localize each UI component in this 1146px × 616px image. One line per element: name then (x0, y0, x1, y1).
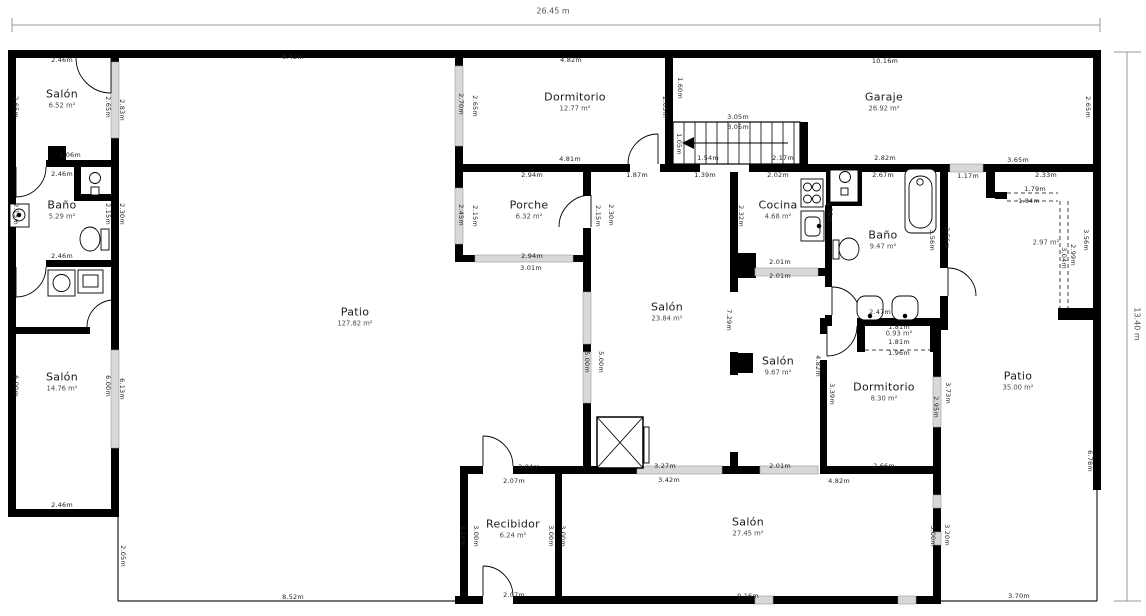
stairs (673, 122, 800, 164)
stove-icon (801, 179, 823, 207)
water-heater-icon (830, 170, 858, 202)
floor-plan: 26.45 m 13.40 m Salón6.52 m²Baño5.29 m²S… (0, 0, 1146, 616)
fixtures (10, 169, 936, 320)
door-utility (16, 267, 46, 297)
door-bano-patio (948, 268, 976, 296)
utility-sink-icon (78, 270, 103, 293)
walls (8, 50, 1101, 604)
elevator-shaft (597, 417, 649, 468)
door-hall-bano (832, 287, 860, 315)
door-recibidor-top (483, 436, 513, 466)
door-salon-topleft (76, 58, 111, 93)
windows (111, 62, 983, 604)
door-dormitorio1 (628, 134, 658, 164)
door-bano1 (16, 167, 46, 197)
boiler-icon-topleft (90, 173, 101, 196)
sink-icon-bano2-left (857, 296, 883, 320)
toilet-icon-bano1 (80, 227, 109, 251)
door-porche (559, 195, 591, 227)
sink-icon-bano2-right (892, 296, 918, 320)
dashed-partitions (865, 193, 1068, 350)
door-utility-right (87, 300, 114, 327)
shower-icon-bano1 (10, 204, 29, 227)
door-recibidor-bottom (483, 566, 513, 596)
kitchen-sink-icon (801, 211, 824, 241)
doors (16, 58, 976, 596)
overall-width-label: 26.45 m (536, 7, 569, 16)
washer-icon (48, 270, 75, 296)
patio-boundary-lines (118, 490, 1097, 601)
toilet-icon-bano2 (833, 238, 859, 260)
door-dormitorio2 (827, 326, 857, 356)
bathtub-icon (905, 169, 936, 233)
overall-height-label: 13.40 m (1133, 307, 1142, 340)
dimension-frame (12, 18, 1141, 601)
floor-plan-drawing (0, 0, 1146, 616)
